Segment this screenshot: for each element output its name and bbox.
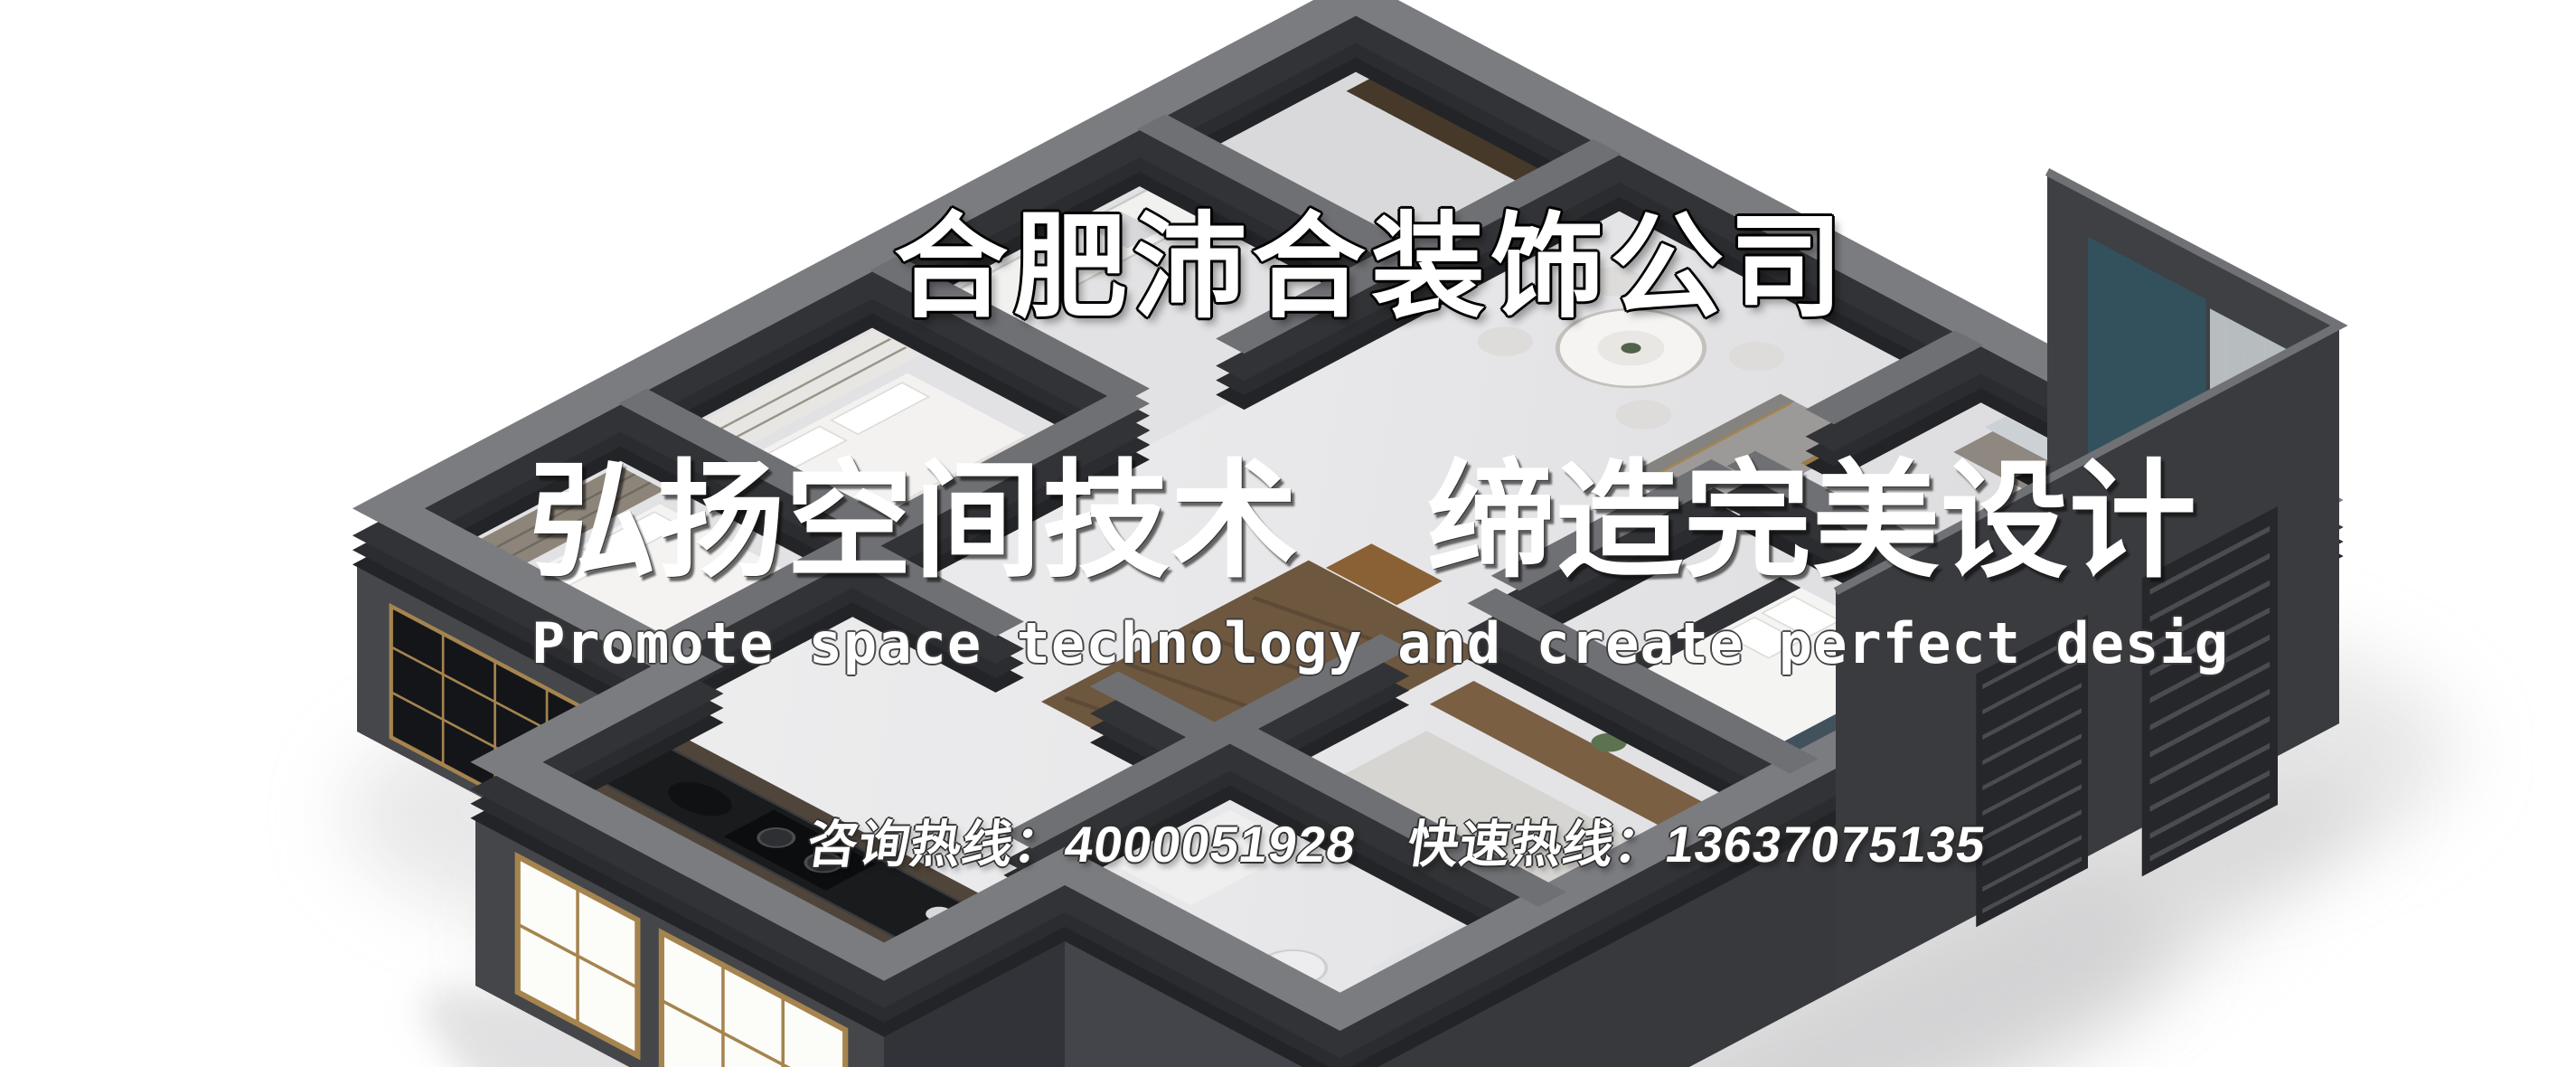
hotline-bar: 咨询热线：4000051928快速热线：13637075135 [804,819,1989,870]
consult-hotline-number: 4000051928 [1061,816,1359,873]
quick-hotline-number: 13637075135 [1662,816,1989,873]
company-title: 合肥沛合装饰公司 [894,211,1848,325]
slogan-cn: 弘扬空间技术 缔造完美设计 [529,458,2197,585]
quick-hotline-label: 快速热线： [1405,816,1670,873]
promo-banner: 合肥沛合装饰公司 弘扬空间技术 缔造完美设计 Promote space tec… [0,0,2576,1067]
consult-hotline-label: 咨询热线： [804,816,1069,873]
slogan-en: Promote space technology and create perf… [531,616,2229,672]
